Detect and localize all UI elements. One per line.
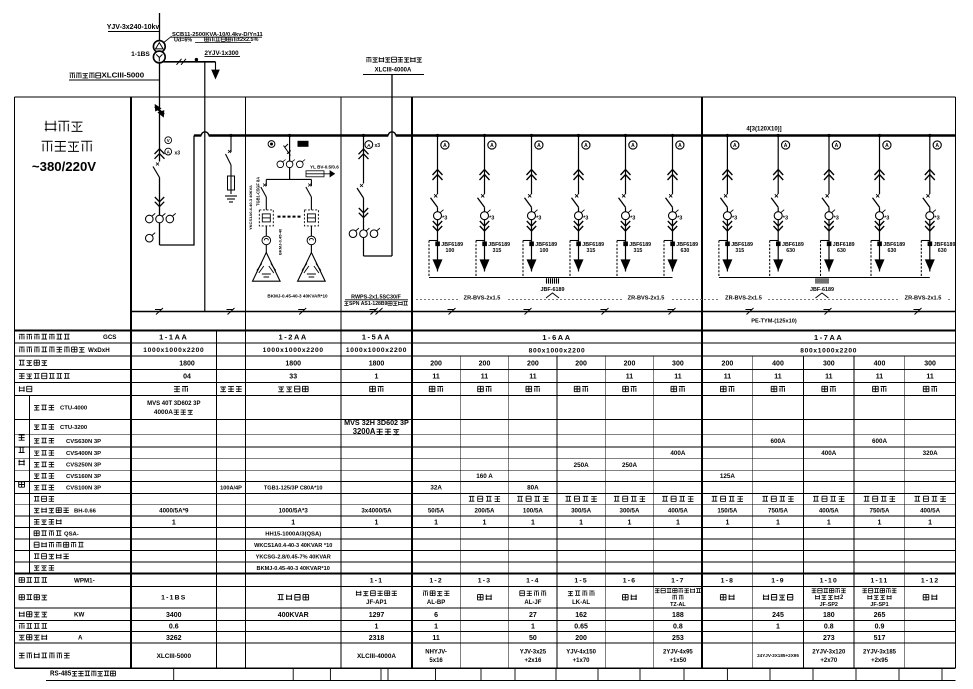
svg-text:320A: 320A <box>923 450 939 457</box>
svg-text:0.6: 0.6 <box>169 624 179 631</box>
svg-text:315: 315 <box>735 248 744 254</box>
svg-text:CVS160N 3P: CVS160N 3P <box>66 474 101 480</box>
svg-text:AL-BP: AL-BP <box>427 600 445 606</box>
svg-text:1: 1 <box>434 624 438 631</box>
svg-text:TGB1-C5GF 8A: TGB1-C5GF 8A <box>255 176 260 206</box>
svg-text:1800: 1800 <box>179 360 195 367</box>
svg-text:A: A <box>443 143 447 149</box>
svg-text:PE-TYM-(125x10): PE-TYM-(125x10) <box>751 319 797 325</box>
svg-text:XLCIII-4000A: XLCIII-4000A <box>357 653 396 660</box>
svg-text:630: 630 <box>681 248 690 254</box>
svg-text:*3: *3 <box>442 215 447 221</box>
svg-text:3262: 3262 <box>166 635 182 642</box>
svg-text:3200A: 3200A <box>353 427 376 436</box>
svg-text:*3: *3 <box>732 215 737 221</box>
svg-text:A: A <box>584 143 588 149</box>
svg-text:200: 200 <box>527 360 539 367</box>
svg-text:+1x50: +1x50 <box>669 658 687 664</box>
svg-text:1-3: 1-3 <box>478 577 491 584</box>
svg-text:*3: *3 <box>834 215 839 221</box>
svg-text:1: 1 <box>928 519 932 526</box>
svg-text:BH-0.66: BH-0.66 <box>74 508 97 514</box>
svg-text:CVS100N 3P: CVS100N 3P <box>66 486 101 492</box>
svg-text:2318: 2318 <box>369 635 385 642</box>
svg-text:100: 100 <box>540 248 549 254</box>
svg-text:315: 315 <box>634 248 643 254</box>
svg-text:630: 630 <box>786 248 795 254</box>
svg-text:GCS: GCS <box>103 334 116 341</box>
svg-text:CTU-4000: CTU-4000 <box>60 406 88 412</box>
svg-text:1-6: 1-6 <box>623 577 636 584</box>
svg-text:200/5A: 200/5A <box>475 507 495 514</box>
svg-text:ZR-BVS-2x1.5: ZR-BVS-2x1.5 <box>464 296 501 302</box>
svg-text:200: 200 <box>430 360 442 367</box>
svg-text:630: 630 <box>938 248 947 254</box>
svg-text:*3: *3 <box>677 215 682 221</box>
svg-text:1: 1 <box>172 519 176 526</box>
svg-text:1: 1 <box>827 519 831 526</box>
svg-text:1: 1 <box>776 624 780 631</box>
svg-text:1-9: 1-9 <box>771 577 784 584</box>
svg-text:1-5: 1-5 <box>574 577 587 584</box>
svg-text:1: 1 <box>375 624 379 631</box>
svg-text:200: 200 <box>722 360 734 367</box>
svg-text:162: 162 <box>575 612 587 619</box>
svg-text:0.8: 0.8 <box>673 624 683 631</box>
svg-text:1-10: 1-10 <box>820 577 838 584</box>
svg-text:4000/5A*9: 4000/5A*9 <box>159 507 189 514</box>
svg-text:AL-JF: AL-JF <box>524 600 541 606</box>
svg-text:630: 630 <box>837 248 846 254</box>
svg-text:300: 300 <box>672 360 684 367</box>
svg-text:YJV-3x240-10kv: YJV-3x240-10kv <box>107 24 160 31</box>
svg-text:YKCS1A0.4-40-3 40KVA: YKCS1A0.4-40-3 40KVA <box>248 185 253 230</box>
svg-text:1: 1 <box>676 519 680 526</box>
svg-text:JBF-6189: JBF-6189 <box>810 287 834 293</box>
svg-text:5x16: 5x16 <box>429 658 443 664</box>
svg-text:100: 100 <box>446 248 455 254</box>
svg-text:*3: *3 <box>630 215 635 221</box>
svg-text:QSA-: QSA- <box>64 532 79 538</box>
svg-text:SPN AS1-128B9: SPN AS1-128B9 <box>349 301 387 307</box>
svg-text:400A: 400A <box>670 450 686 457</box>
svg-text:32A: 32A <box>430 485 442 492</box>
svg-text:HH15-1000A/3(QSA): HH15-1000A/3(QSA) <box>265 531 321 537</box>
svg-text:11: 11 <box>674 374 682 381</box>
svg-text:1-1BS: 1-1BS <box>131 51 150 58</box>
svg-text:XLCIII-5000: XLCIII-5000 <box>157 653 192 660</box>
svg-text:WxDxH: WxDxH <box>88 347 110 354</box>
svg-text:JF-AP1: JF-AP1 <box>366 600 387 606</box>
svg-text:1800: 1800 <box>369 360 385 367</box>
svg-text:250A: 250A <box>622 462 638 469</box>
svg-text:MVS 32H 3D602 3P: MVS 32H 3D602 3P <box>344 418 409 427</box>
svg-text:1-7AA: 1-7AA <box>814 333 843 342</box>
svg-text:A: A <box>935 143 939 149</box>
svg-text:*3: *3 <box>583 215 588 221</box>
svg-text:1-7: 1-7 <box>671 577 684 584</box>
svg-text:400/5A: 400/5A <box>668 507 688 514</box>
svg-text:NHYJV-: NHYJV- <box>425 649 447 655</box>
svg-text:BKMJ-0.45-40: BKMJ-0.45-40 <box>278 228 283 255</box>
svg-text:1-8: 1-8 <box>721 577 734 584</box>
svg-text:JF-SP1: JF-SP1 <box>870 602 888 608</box>
svg-text:JBF-6189: JBF-6189 <box>541 287 565 293</box>
svg-text:*3: *3 <box>934 215 939 221</box>
svg-text:33: 33 <box>289 374 297 381</box>
svg-text:TGB1-125/3P C80A*10: TGB1-125/3P C80A*10 <box>264 486 323 492</box>
svg-text:24YJV-3X185+2X95: 24YJV-3X185+2X95 <box>757 653 799 658</box>
svg-text:50: 50 <box>529 635 537 642</box>
svg-text:XLCIII-4000A: XLCIII-4000A <box>375 68 412 74</box>
svg-text:0.9: 0.9 <box>875 624 885 631</box>
svg-text:RS-485: RS-485 <box>50 670 71 677</box>
svg-text:80A: 80A <box>527 485 539 492</box>
svg-text:WKCS1A0.4-40-3 40KVAR *10: WKCS1A0.4-40-3 40KVAR *10 <box>254 543 332 549</box>
svg-text:WPM1-: WPM1- <box>74 577 95 584</box>
svg-text:ZR-BVS-2x1.5: ZR-BVS-2x1.5 <box>725 296 762 302</box>
svg-text:3x4000/5A: 3x4000/5A <box>361 507 392 514</box>
svg-text:11: 11 <box>481 374 489 381</box>
svg-text:x3: x3 <box>375 143 381 149</box>
svg-text:A: A <box>490 143 494 149</box>
svg-text:2YJV-3x120: 2YJV-3x120 <box>812 649 846 655</box>
svg-text:11: 11 <box>529 374 537 381</box>
svg-text:1: 1 <box>375 374 379 381</box>
svg-text:1800: 1800 <box>285 360 301 367</box>
svg-text:3400: 3400 <box>166 612 182 619</box>
svg-text:1: 1 <box>628 519 632 526</box>
svg-text:2YJV-4x95: 2YJV-4x95 <box>663 649 693 655</box>
svg-text:A: A <box>537 143 541 149</box>
svg-text:A: A <box>631 143 635 149</box>
svg-text:BKMJ-0.45-40-3 40KVAR*10: BKMJ-0.45-40-3 40KVAR*10 <box>257 566 330 572</box>
svg-text:273: 273 <box>823 635 835 642</box>
svg-text:LK-AL: LK-AL <box>572 600 590 606</box>
svg-text:1-2AA: 1-2AA <box>279 332 308 341</box>
svg-text:11: 11 <box>432 635 440 642</box>
svg-text:245: 245 <box>772 612 784 619</box>
svg-text:*3: *3 <box>783 215 788 221</box>
svg-text:11: 11 <box>825 374 833 381</box>
svg-text:400/5A: 400/5A <box>920 507 940 514</box>
svg-text:750/5A: 750/5A <box>768 507 788 514</box>
svg-text:KW: KW <box>74 612 84 619</box>
svg-text:V: V <box>167 138 170 143</box>
svg-text:MVS 40T 3D602 3P: MVS 40T 3D602 3P <box>147 401 200 407</box>
svg-text:1: 1 <box>531 624 535 631</box>
svg-text:188: 188 <box>672 612 684 619</box>
svg-text:+1x70: +1x70 <box>573 658 591 664</box>
svg-text:1-1AA: 1-1AA <box>159 332 188 341</box>
svg-text:600A: 600A <box>872 438 888 445</box>
svg-text:TZ-AL: TZ-AL <box>670 602 686 608</box>
svg-text:*3: *3 <box>884 215 889 221</box>
svg-text:300: 300 <box>823 360 835 367</box>
svg-text:11: 11 <box>724 374 732 381</box>
svg-text:11: 11 <box>432 374 440 381</box>
svg-text:1-5AA: 1-5AA <box>362 332 391 341</box>
svg-text:200: 200 <box>575 360 587 367</box>
svg-text:1-6AA: 1-6AA <box>542 333 571 342</box>
svg-text:x3: x3 <box>175 151 181 157</box>
svg-text:4[3(120X10)]: 4[3(120X10)] <box>746 127 781 133</box>
svg-text:A: A <box>678 143 682 149</box>
svg-text:315: 315 <box>587 248 596 254</box>
svg-text:CVS400N 3P: CVS400N 3P <box>66 451 101 457</box>
svg-text:600A: 600A <box>770 438 786 445</box>
svg-text:ZR-BVS-2x1.5: ZR-BVS-2x1.5 <box>628 296 665 302</box>
svg-text:XLCIII-5000: XLCIII-5000 <box>102 72 145 79</box>
svg-text:11: 11 <box>876 374 884 381</box>
svg-text:630: 630 <box>888 248 897 254</box>
svg-text:1000x1000x2200: 1000x1000x2200 <box>263 347 324 354</box>
svg-text:1000x1000x2200: 1000x1000x2200 <box>143 347 204 354</box>
svg-text:2YJV-3x185: 2YJV-3x185 <box>863 649 897 655</box>
svg-text:100A/4P: 100A/4P <box>220 486 242 492</box>
svg-text:4000A: 4000A <box>154 409 173 416</box>
svg-text:A: A <box>367 143 371 149</box>
svg-text:200: 200 <box>575 635 587 642</box>
svg-text:300/5A: 300/5A <box>620 507 640 514</box>
svg-text:11: 11 <box>626 374 634 381</box>
svg-text:6: 6 <box>434 612 438 619</box>
svg-text:800x1000x2200: 800x1000x2200 <box>800 347 857 354</box>
svg-text:±2x2.5%: ±2x2.5% <box>237 37 259 43</box>
svg-text:400: 400 <box>772 360 784 367</box>
svg-text:1: 1 <box>878 519 882 526</box>
svg-text:04: 04 <box>183 374 191 381</box>
svg-text:50/5A: 50/5A <box>428 507 445 514</box>
svg-text:1-2: 1-2 <box>429 577 442 584</box>
svg-text:150/5A: 150/5A <box>717 507 737 514</box>
svg-text:Ud=6%: Ud=6% <box>174 38 192 44</box>
svg-text:YJV-3x25: YJV-3x25 <box>520 649 547 655</box>
svg-text:1-4: 1-4 <box>526 577 539 584</box>
svg-text:400KVAR: 400KVAR <box>278 612 309 619</box>
svg-text:1-1BS: 1-1BS <box>161 595 186 602</box>
svg-text:1000x1000x2200: 1000x1000x2200 <box>346 347 407 354</box>
svg-text:11: 11 <box>774 374 782 381</box>
svg-text:400A: 400A <box>821 450 837 457</box>
svg-text:*3: *3 <box>489 215 494 221</box>
svg-text:800x1000x2200: 800x1000x2200 <box>529 347 586 354</box>
svg-text:A: A <box>78 635 83 642</box>
svg-text:253: 253 <box>672 635 684 642</box>
svg-text:27: 27 <box>529 612 537 619</box>
svg-text:250A: 250A <box>574 462 590 469</box>
svg-text:1: 1 <box>483 519 487 526</box>
svg-text:1-11: 1-11 <box>870 577 888 584</box>
svg-text:0.65: 0.65 <box>574 624 588 631</box>
svg-text:JF-SP2: JF-SP2 <box>820 602 838 608</box>
svg-text:200: 200 <box>479 360 491 367</box>
svg-text:125A: 125A <box>720 473 736 480</box>
svg-text:300: 300 <box>924 360 936 367</box>
svg-text:YKCSG-2.8/0.45-7% 40KVAR: YKCSG-2.8/0.45-7% 40KVAR <box>256 554 331 560</box>
svg-text:A: A <box>733 143 737 149</box>
svg-text:1: 1 <box>579 519 583 526</box>
svg-text:1: 1 <box>725 519 729 526</box>
svg-text:~380/220V: ~380/220V <box>32 159 96 174</box>
svg-text:100/5A: 100/5A <box>523 507 543 514</box>
svg-text:1-12: 1-12 <box>921 577 939 584</box>
svg-text:1297: 1297 <box>369 612 385 619</box>
svg-text:400: 400 <box>874 360 886 367</box>
svg-text:400/5A: 400/5A <box>819 507 839 514</box>
svg-text:0.8: 0.8 <box>824 624 834 631</box>
svg-text:1: 1 <box>375 519 379 526</box>
svg-text:A: A <box>784 143 788 149</box>
svg-text:1-1: 1-1 <box>370 577 383 584</box>
svg-text:+2x95: +2x95 <box>871 658 889 664</box>
svg-text:315: 315 <box>493 248 502 254</box>
svg-text:517: 517 <box>874 635 886 642</box>
svg-text:*3: *3 <box>536 215 541 221</box>
svg-text:BKMJ-0.45-40-3 40KVAR*10: BKMJ-0.45-40-3 40KVAR*10 <box>267 294 328 299</box>
svg-text:160 A: 160 A <box>476 473 493 480</box>
svg-text:1: 1 <box>291 519 295 526</box>
svg-text:+2x16: +2x16 <box>524 658 542 664</box>
svg-text:+2x70: +2x70 <box>820 658 838 664</box>
svg-text:1: 1 <box>776 519 780 526</box>
svg-text:CVS250N 3P: CVS250N 3P <box>66 463 101 469</box>
svg-text:180: 180 <box>823 612 835 619</box>
svg-text:265: 265 <box>874 612 886 619</box>
svg-text:1000/5A*3: 1000/5A*3 <box>279 507 309 514</box>
svg-text:ZR-BVS-2x1.5: ZR-BVS-2x1.5 <box>905 296 942 302</box>
svg-text:CVS630N 3P: CVS630N 3P <box>66 439 101 445</box>
svg-text:300/5A: 300/5A <box>571 507 591 514</box>
svg-text:200: 200 <box>624 360 636 367</box>
svg-text:A: A <box>835 143 839 149</box>
svg-text:YJV-4x150: YJV-4x150 <box>566 649 596 655</box>
svg-text:YL BV-0.5/0.6: YL BV-0.5/0.6 <box>310 165 339 170</box>
svg-text:1: 1 <box>531 519 535 526</box>
svg-text:750/5A: 750/5A <box>870 507 890 514</box>
svg-text:11: 11 <box>926 374 934 381</box>
svg-text:A: A <box>885 143 889 149</box>
svg-text:CTU-3200: CTU-3200 <box>60 425 88 431</box>
svg-text:1: 1 <box>434 519 438 526</box>
